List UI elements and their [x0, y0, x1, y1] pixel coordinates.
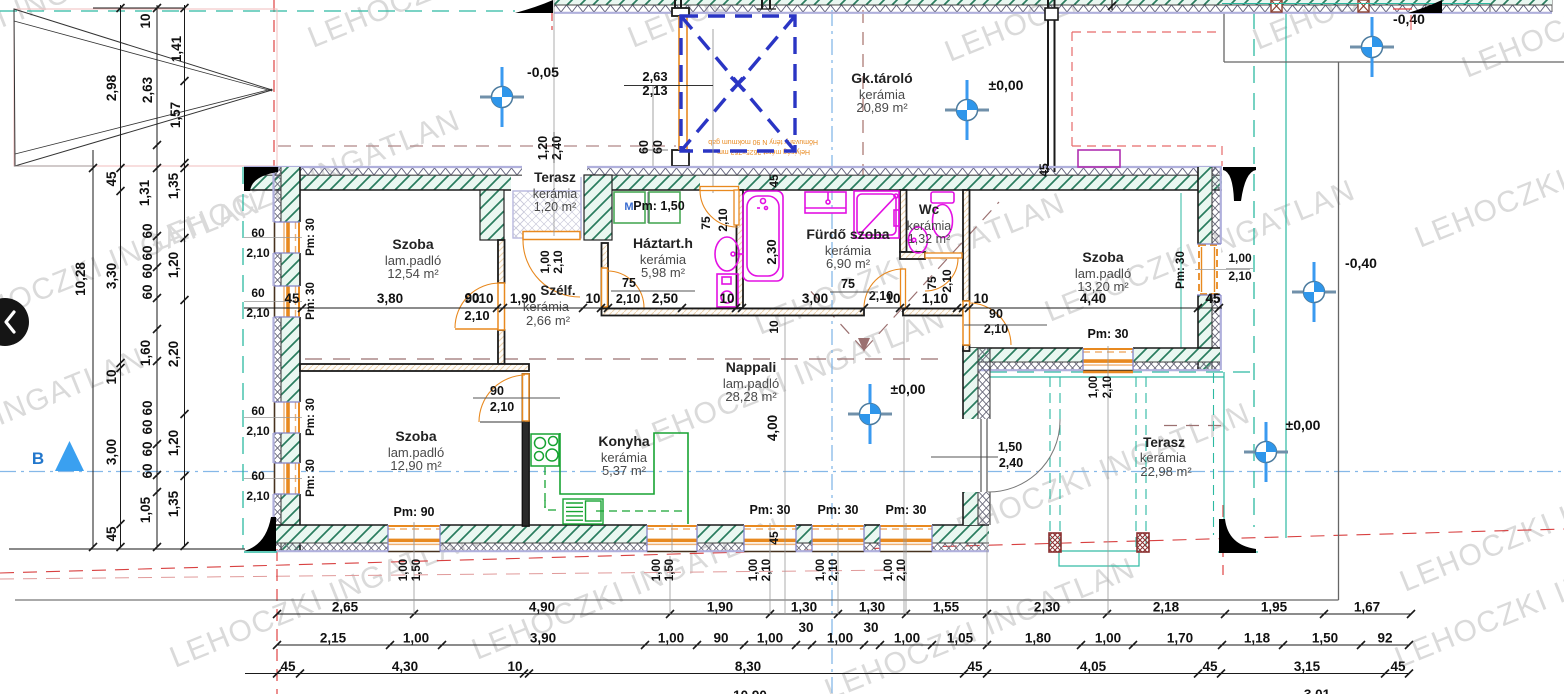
- svg-text:10: 10: [973, 291, 988, 306]
- svg-text:3,80: 3,80: [377, 291, 403, 306]
- svg-text:75: 75: [841, 277, 855, 291]
- svg-text:2,50: 2,50: [652, 291, 678, 306]
- svg-text:4,90: 4,90: [529, 600, 555, 615]
- svg-text:Pm: 1,50: Pm: 1,50: [633, 199, 684, 213]
- svg-text:2,10: 2,10: [984, 322, 1008, 336]
- svg-text:90: 90: [490, 384, 504, 398]
- svg-text:1,00: 1,00: [1095, 631, 1121, 646]
- svg-text:1,00: 1,00: [894, 631, 920, 646]
- svg-text:1,00: 1,00: [827, 631, 853, 646]
- svg-text:4,30: 4,30: [392, 659, 418, 674]
- svg-text:2,10: 2,10: [716, 208, 730, 232]
- svg-text:2,10: 2,10: [896, 559, 908, 581]
- svg-text:10: 10: [719, 291, 734, 306]
- svg-text:1,00: 1,00: [757, 631, 783, 646]
- svg-text:2,15: 2,15: [320, 631, 347, 646]
- svg-text:3,00: 3,00: [802, 291, 828, 306]
- svg-text:45: 45: [1202, 659, 1218, 674]
- svg-text:Szoba: Szoba: [1082, 249, 1123, 265]
- svg-text:10,28: 10,28: [73, 262, 88, 296]
- svg-text:1,30: 1,30: [859, 600, 885, 615]
- svg-text:1,31: 1,31: [137, 179, 152, 206]
- svg-text:92: 92: [1377, 631, 1392, 646]
- svg-text:12,90 m²: 12,90 m²: [390, 458, 442, 473]
- svg-text:Pm: 30: Pm: 30: [305, 398, 317, 436]
- svg-text:3,01: 3,01: [1304, 687, 1331, 694]
- svg-text:1,00: 1,00: [651, 559, 663, 581]
- svg-text:2,10: 2,10: [490, 400, 514, 414]
- svg-text:2,10: 2,10: [246, 306, 270, 320]
- svg-text:1,20: 1,20: [166, 252, 181, 278]
- svg-text:2,63: 2,63: [642, 69, 667, 84]
- svg-text:Pm: 30: Pm: 30: [1088, 327, 1129, 341]
- svg-text:20,89 m²: 20,89 m²: [856, 100, 908, 115]
- svg-text:60: 60: [251, 286, 265, 300]
- svg-text:M: M: [624, 201, 633, 213]
- svg-text:45: 45: [104, 526, 119, 542]
- svg-text:45: 45: [767, 174, 781, 188]
- svg-text:Hőmuvany tény N 90 mokmum gab: Hőmuvany tény N 90 mokmum gab: [708, 138, 818, 145]
- svg-text:Pm: 30: Pm: 30: [750, 503, 791, 517]
- svg-text:60: 60: [140, 263, 155, 278]
- svg-text:Háztart.h: Háztart.h: [633, 235, 693, 251]
- svg-text:5,98 m²: 5,98 m²: [641, 265, 686, 280]
- svg-text:±0,00: ±0,00: [891, 381, 926, 397]
- svg-text:2,40: 2,40: [999, 456, 1023, 470]
- svg-text:Pm: 30: Pm: 30: [886, 503, 927, 517]
- svg-text:Pm: 30: Pm: 30: [818, 503, 859, 517]
- svg-text:1,00: 1,00: [658, 631, 684, 646]
- svg-text:45: 45: [284, 291, 300, 306]
- svg-text:Pm: 30: Pm: 30: [305, 282, 317, 320]
- svg-text:60: 60: [251, 226, 265, 240]
- svg-text:1,50: 1,50: [998, 440, 1022, 454]
- svg-text:90: 90: [713, 631, 728, 646]
- svg-text:10: 10: [104, 369, 119, 384]
- svg-text:Pm: 30: Pm: 30: [305, 459, 317, 497]
- svg-text:2,40: 2,40: [550, 136, 564, 160]
- svg-text:kerámia: kerámia: [1140, 450, 1187, 465]
- svg-text:1,20: 1,20: [166, 430, 181, 456]
- svg-text:10: 10: [507, 659, 522, 674]
- svg-text:2,18: 2,18: [1153, 600, 1180, 615]
- svg-text:2,30: 2,30: [1034, 600, 1060, 615]
- svg-text:12,54 m²: 12,54 m²: [387, 266, 439, 281]
- svg-text:2,10: 2,10: [761, 559, 773, 581]
- svg-text:Konyha: Konyha: [598, 433, 650, 449]
- svg-text:10,90: 10,90: [733, 688, 767, 694]
- svg-text:45: 45: [767, 531, 781, 545]
- svg-text:3,00: 3,00: [104, 439, 119, 465]
- svg-text:28,28 m²: 28,28 m²: [725, 389, 777, 404]
- svg-text:10: 10: [138, 13, 153, 28]
- svg-text:45: 45: [1205, 291, 1221, 306]
- svg-text:±0,00: ±0,00: [1286, 417, 1321, 433]
- svg-text:Pm: 30: Pm: 30: [305, 218, 317, 256]
- svg-text:60: 60: [140, 441, 155, 456]
- svg-text:75: 75: [699, 216, 713, 230]
- svg-text:2,10: 2,10: [869, 289, 893, 303]
- svg-text:1,60: 1,60: [138, 340, 153, 366]
- svg-text:1,20: 1,20: [536, 136, 550, 160]
- svg-text:2,10: 2,10: [1102, 376, 1114, 398]
- svg-text:1,00: 1,00: [815, 559, 827, 581]
- svg-text:Pm: 30: Pm: 30: [1175, 251, 1187, 289]
- svg-text:1,67: 1,67: [1354, 600, 1380, 615]
- svg-text:60: 60: [251, 469, 265, 483]
- svg-text:2,65: 2,65: [332, 600, 359, 615]
- svg-text:1,00: 1,00: [748, 559, 760, 581]
- svg-text:1,05: 1,05: [138, 496, 153, 523]
- svg-text:1,00: 1,00: [403, 631, 429, 646]
- svg-text:4,05: 4,05: [1080, 659, 1107, 674]
- svg-text:60: 60: [140, 245, 155, 260]
- svg-text:8,30: 8,30: [735, 659, 761, 674]
- svg-text:60: 60: [637, 140, 651, 154]
- svg-text:1,70: 1,70: [1167, 631, 1193, 646]
- svg-text:6,90 m²: 6,90 m²: [826, 256, 871, 271]
- svg-text:45: 45: [280, 659, 296, 674]
- svg-text:1,00: 1,00: [538, 250, 552, 274]
- svg-text:90: 90: [465, 291, 479, 305]
- svg-text:2,10: 2,10: [940, 269, 954, 293]
- svg-text:90: 90: [989, 307, 1003, 321]
- svg-text:75: 75: [925, 276, 939, 290]
- svg-text:2,10: 2,10: [551, 250, 565, 274]
- svg-text:1,35: 1,35: [166, 172, 181, 199]
- svg-text:1,35: 1,35: [166, 490, 181, 517]
- svg-text:10: 10: [585, 291, 600, 306]
- svg-text:-0,05: -0,05: [527, 64, 559, 80]
- svg-text:Szoba: Szoba: [392, 236, 433, 252]
- svg-text:10: 10: [767, 320, 781, 334]
- svg-text:3,30: 3,30: [104, 263, 119, 289]
- svg-text:Wc: Wc: [919, 202, 940, 217]
- svg-text:60: 60: [140, 284, 155, 299]
- svg-text:3,15: 3,15: [1294, 659, 1321, 674]
- svg-text:2,66 m²: 2,66 m²: [526, 313, 571, 328]
- svg-text:2,10: 2,10: [246, 246, 270, 260]
- svg-text:75: 75: [622, 276, 636, 290]
- svg-text:-0,40: -0,40: [1393, 11, 1425, 27]
- svg-text:60: 60: [140, 223, 155, 238]
- svg-text:22,98 m²: 22,98 m²: [1140, 464, 1192, 479]
- svg-text:10: 10: [478, 291, 493, 306]
- svg-text:2,30: 2,30: [764, 239, 779, 264]
- svg-text:1,00: 1,00: [1228, 251, 1252, 265]
- svg-text:Terasz: Terasz: [1143, 435, 1185, 450]
- svg-text:-0,40: -0,40: [1345, 255, 1377, 271]
- svg-text:1,20 m²: 1,20 m²: [534, 200, 576, 214]
- svg-text:2,10: 2,10: [616, 292, 640, 306]
- svg-text:Pm: 90: Pm: 90: [394, 505, 435, 519]
- svg-text:2,10: 2,10: [1228, 269, 1252, 283]
- svg-text:3,90: 3,90: [530, 631, 556, 646]
- svg-text:1,41: 1,41: [169, 35, 184, 62]
- svg-text:1,05: 1,05: [947, 631, 974, 646]
- svg-text:1,50: 1,50: [411, 559, 423, 581]
- svg-text:1,50: 1,50: [1312, 631, 1338, 646]
- svg-text:60: 60: [140, 400, 155, 415]
- svg-text:45: 45: [1037, 163, 1051, 177]
- svg-text:2,10: 2,10: [246, 424, 270, 438]
- svg-text:45: 45: [1390, 659, 1406, 674]
- svg-text:1,00: 1,00: [883, 559, 895, 581]
- svg-text:Szoba: Szoba: [395, 428, 436, 444]
- svg-text:2,10: 2,10: [464, 308, 489, 323]
- svg-text:45: 45: [104, 171, 119, 187]
- svg-text:1,30: 1,30: [791, 600, 817, 615]
- svg-text:45: 45: [967, 659, 983, 674]
- svg-text:1,32 m²: 1,32 m²: [908, 232, 950, 246]
- svg-text:1,55: 1,55: [933, 600, 960, 615]
- svg-text:30: 30: [798, 620, 813, 635]
- svg-text:kerámia: kerámia: [907, 219, 952, 233]
- svg-text:60: 60: [251, 404, 265, 418]
- svg-text:±0,00: ±0,00: [989, 77, 1024, 93]
- svg-text:1,18: 1,18: [1244, 631, 1271, 646]
- svg-text:2,20: 2,20: [166, 341, 181, 367]
- svg-text:Terasz: Terasz: [534, 170, 576, 185]
- svg-text:1,00: 1,00: [1088, 376, 1100, 398]
- svg-text:1,57: 1,57: [168, 102, 183, 128]
- svg-text:Szélf.: Szélf.: [540, 283, 575, 298]
- svg-text:2,10: 2,10: [246, 489, 270, 503]
- svg-text:B: B: [32, 449, 44, 468]
- svg-text:60: 60: [140, 419, 155, 434]
- svg-text:1,50: 1,50: [664, 559, 676, 581]
- svg-text:60: 60: [140, 463, 155, 478]
- svg-text:kerámia: kerámia: [533, 187, 578, 201]
- svg-text:1,00: 1,00: [398, 559, 410, 581]
- svg-text:Nappali: Nappali: [726, 359, 777, 375]
- svg-text:Gk.tároló: Gk.tároló: [851, 70, 912, 86]
- svg-text:2,10: 2,10: [828, 559, 840, 581]
- svg-text:5,37 m²: 5,37 m²: [602, 463, 647, 478]
- svg-text:Fürdő szoba: Fürdő szoba: [806, 226, 889, 242]
- svg-text:13,20 m²: 13,20 m²: [1077, 279, 1129, 294]
- svg-text:2,63: 2,63: [140, 76, 155, 103]
- svg-text:1,95: 1,95: [1261, 600, 1288, 615]
- svg-text:kerámia: kerámia: [523, 299, 570, 314]
- svg-text:60: 60: [651, 140, 665, 154]
- svg-text:30: 30: [863, 620, 878, 635]
- svg-text:1,90: 1,90: [707, 600, 733, 615]
- svg-text:1,80: 1,80: [1025, 631, 1051, 646]
- svg-text:4,00: 4,00: [765, 415, 780, 441]
- svg-text:2,98: 2,98: [104, 74, 119, 101]
